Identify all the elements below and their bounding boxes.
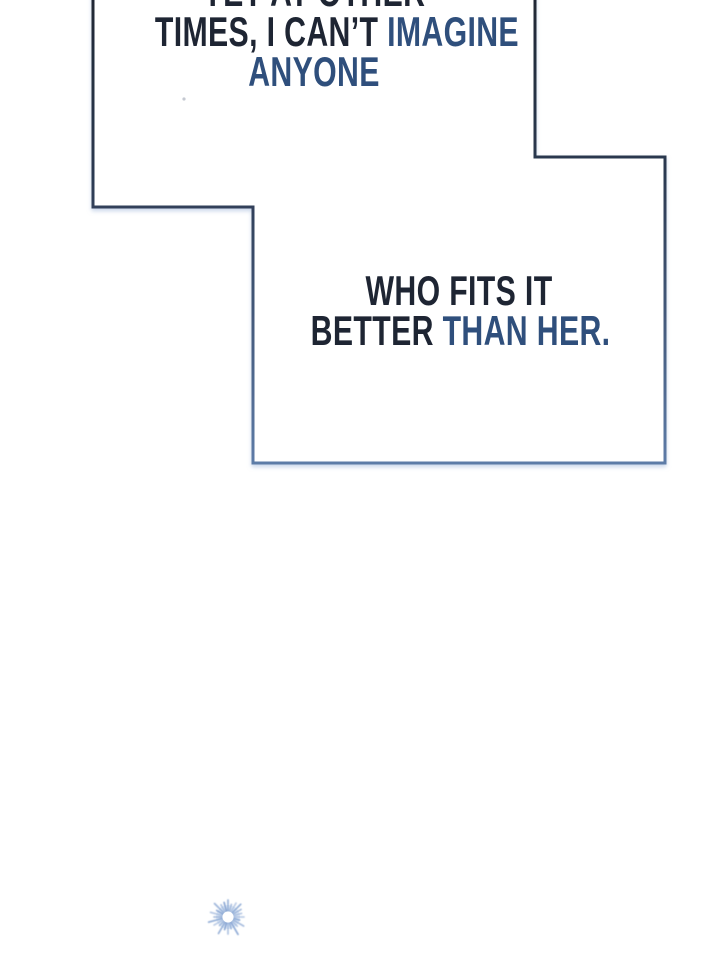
speech-segment: ANYONE bbox=[248, 48, 380, 95]
speech-line: BETTER THAN HER. bbox=[311, 311, 608, 351]
speech-bubble-1-text: YET AT OTHER TIMES, I CAN’T IMAGINE ANYO… bbox=[155, 0, 473, 92]
speech-bubble-2-text: WHO FITS IT BETTER THAN HER. bbox=[311, 271, 608, 351]
panel-artwork bbox=[0, 0, 720, 972]
sparkle-effect bbox=[209, 900, 244, 934]
ink-speck bbox=[182, 97, 185, 100]
speech-line: WHO FITS IT bbox=[311, 271, 608, 311]
speech-segment: BETTER bbox=[311, 307, 443, 354]
comic-page: YET AT OTHER TIMES, I CAN’T IMAGINE ANYO… bbox=[0, 0, 720, 972]
speech-line: ANYONE bbox=[155, 52, 473, 92]
speech-segment: THAN HER. bbox=[443, 307, 611, 354]
speech-line: TIMES, I CAN’T IMAGINE bbox=[155, 12, 473, 52]
sparkle-core bbox=[223, 912, 234, 923]
speech-segment: IMAGINE bbox=[387, 8, 519, 55]
